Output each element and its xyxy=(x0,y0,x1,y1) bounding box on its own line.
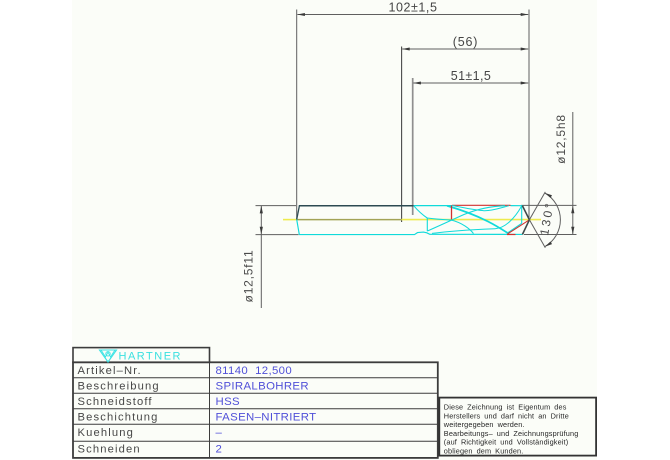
svg-text:(56): (56) xyxy=(453,35,478,49)
svg-text:Beschreibung: Beschreibung xyxy=(78,381,160,393)
svg-text:51±1,5: 51±1,5 xyxy=(451,69,492,83)
svg-text:obliegen dem Kunden.: obliegen dem Kunden. xyxy=(444,447,524,456)
svg-text:Beschichtung: Beschichtung xyxy=(78,411,159,423)
svg-text:Herstellers und darf nicht an: Herstellers und darf nicht an Dritte xyxy=(444,411,569,420)
svg-text:weitergegeben werden.: weitergegeben werden. xyxy=(443,420,525,429)
svg-text:Schneiden: Schneiden xyxy=(78,444,141,456)
svg-text:(auf Richtigkeit und Vollständ: (auf Richtigkeit und Vollständigkeit) xyxy=(444,438,569,447)
svg-text:Kuehlung: Kuehlung xyxy=(78,427,134,439)
svg-text:Bearbeitungs– und Zeichnungspr: Bearbeitungs– und Zeichnungsprüfung xyxy=(444,429,579,438)
svg-text:102±1,5: 102±1,5 xyxy=(389,1,438,15)
svg-text:Schneidstoff: Schneidstoff xyxy=(78,396,153,408)
svg-text:–: – xyxy=(216,427,223,439)
svg-text:81140 12,500: 81140 12,500 xyxy=(216,365,293,377)
svg-text:Diese Zeichnung ist Eigentum d: Diese Zeichnung ist Eigentum des xyxy=(444,403,567,412)
svg-text:SPIRALBOHRER: SPIRALBOHRER xyxy=(216,381,309,393)
svg-text:ø12,5h8: ø12,5h8 xyxy=(554,114,568,164)
svg-text:HSS: HSS xyxy=(216,396,241,408)
svg-text:FASEN–NITRIERT: FASEN–NITRIERT xyxy=(216,411,317,423)
svg-text:ø12,5f11: ø12,5f11 xyxy=(242,250,256,303)
svg-text:2: 2 xyxy=(216,444,223,456)
svg-text:Artikel–Nr.: Artikel–Nr. xyxy=(78,365,142,377)
svg-text:HARTNER: HARTNER xyxy=(119,351,182,363)
